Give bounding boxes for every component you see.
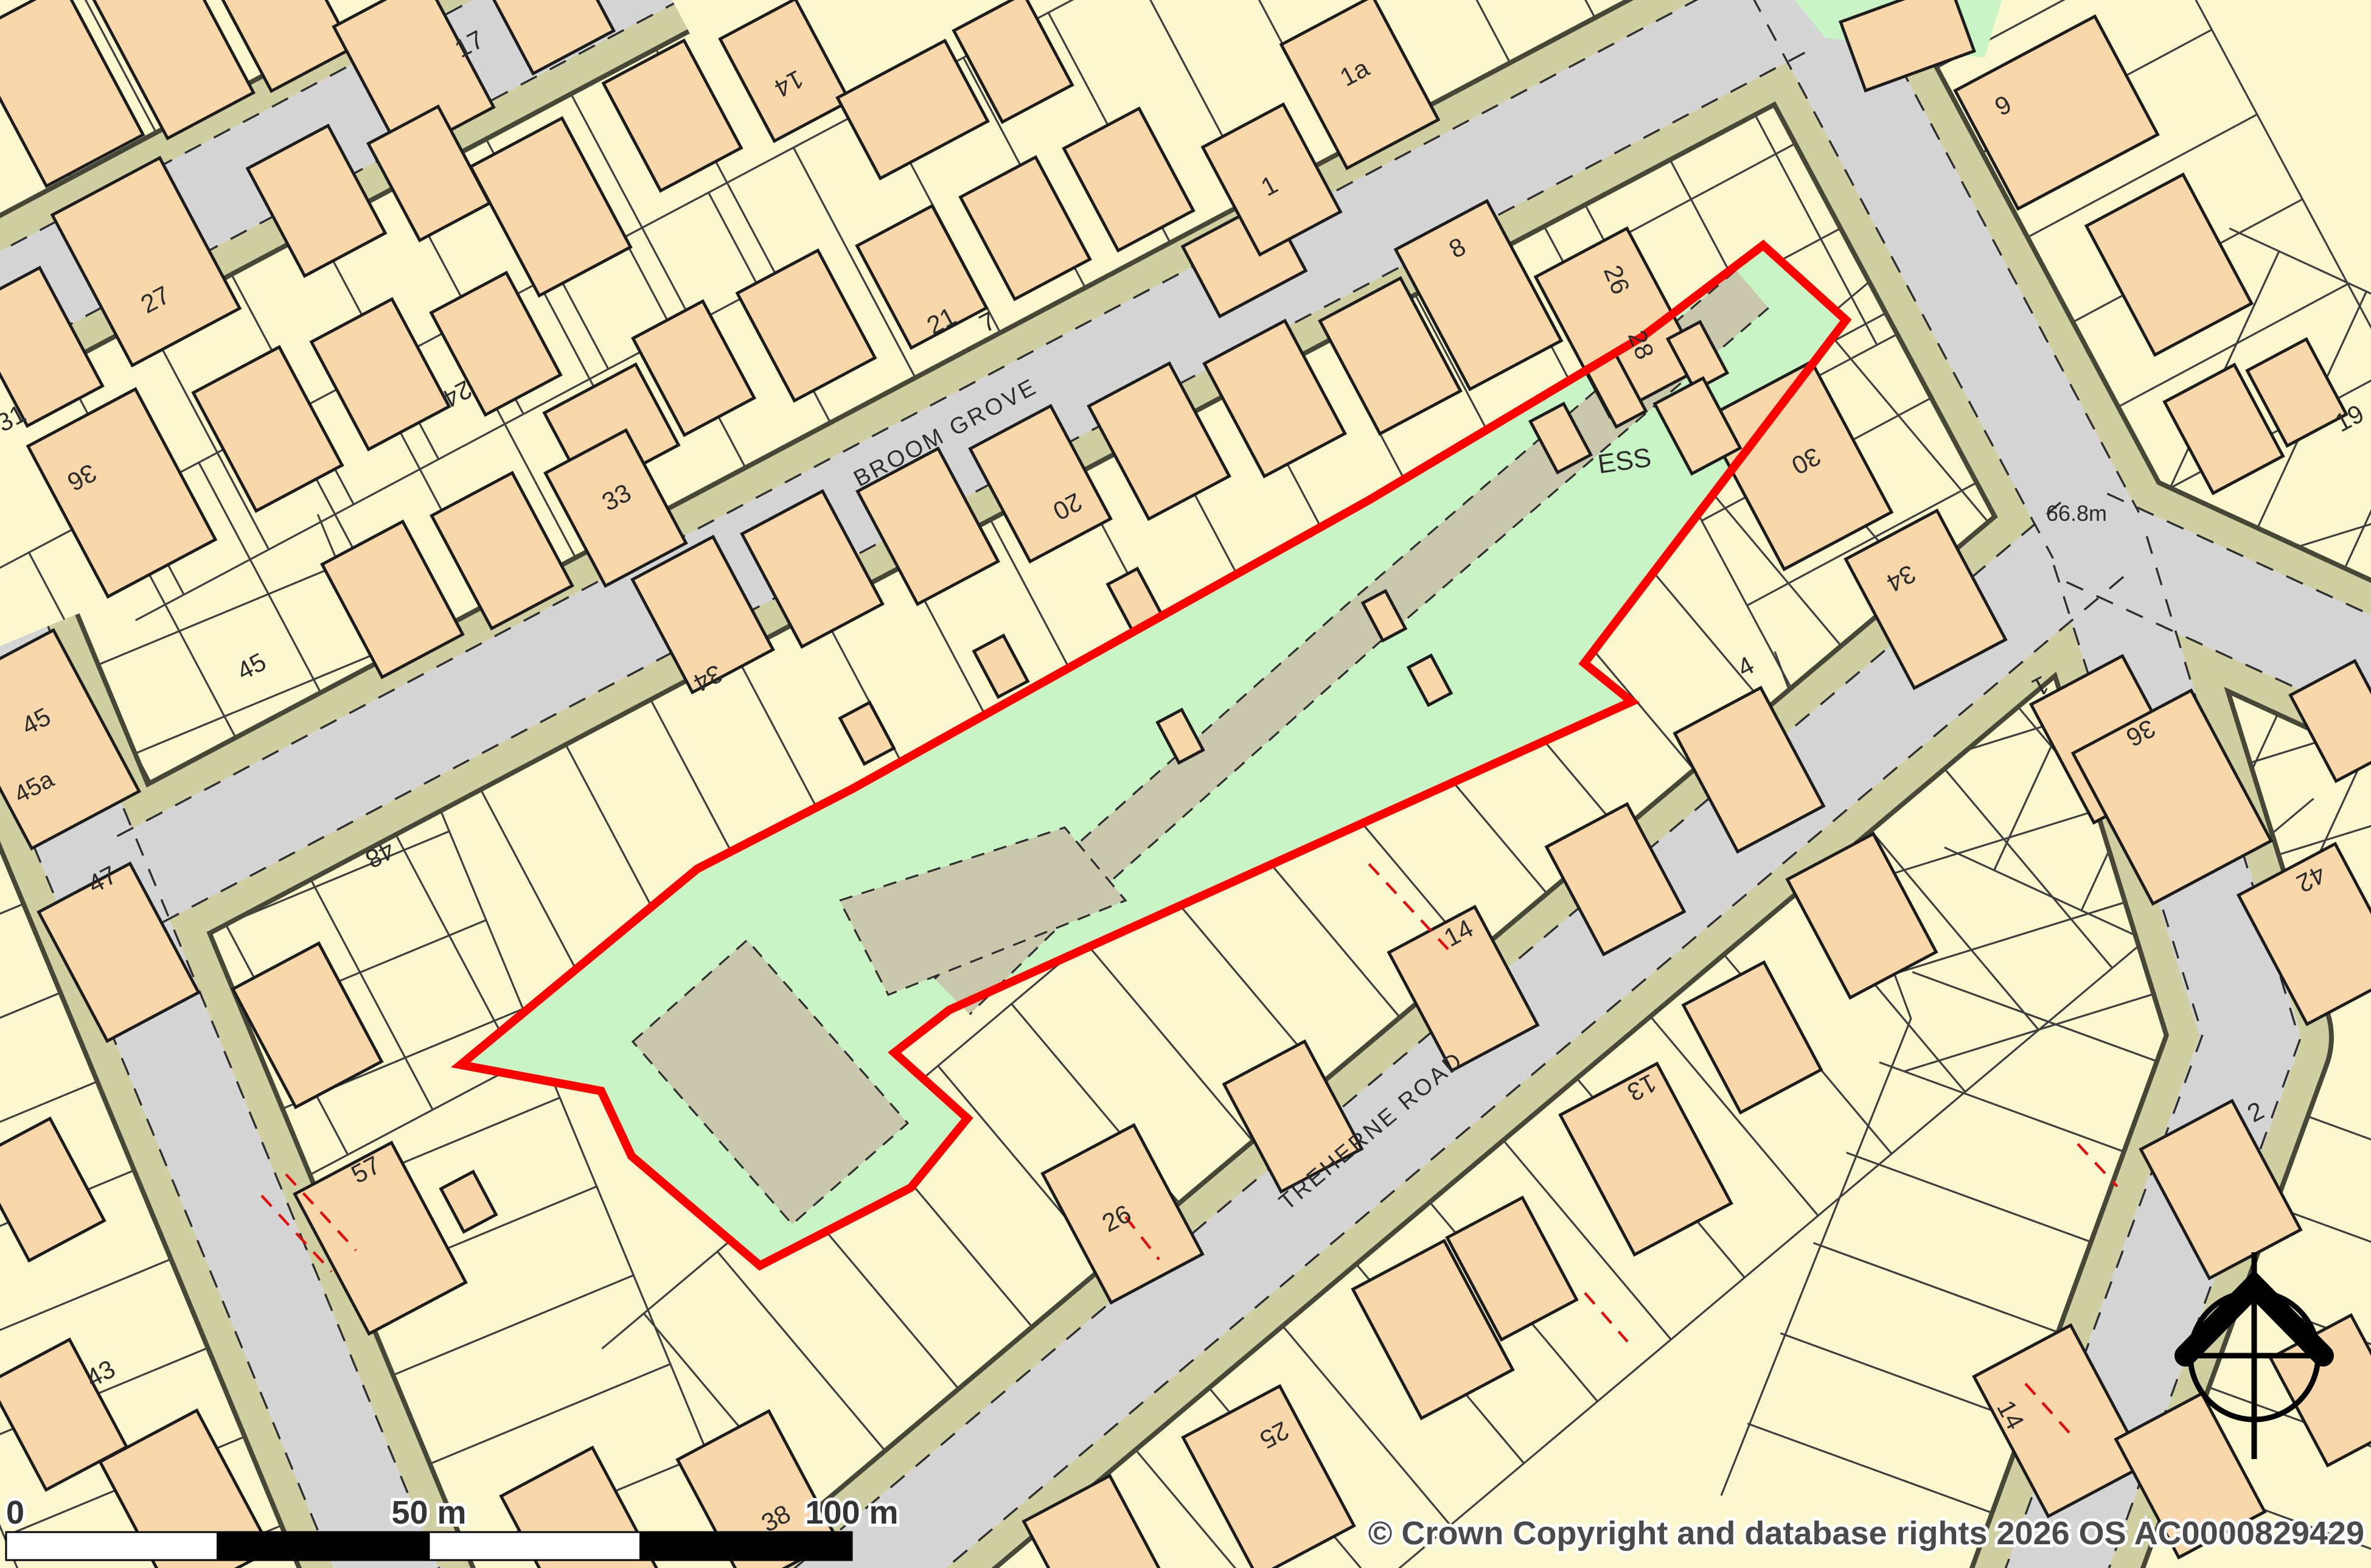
spot-height-label: 66.8m	[2046, 501, 2107, 526]
scale-bar-segment	[429, 1532, 641, 1560]
site-plan-map: BROOM GROVETREHERNE ROAD66.8mESS17273124…	[0, 0, 2371, 1568]
scale-label-0: 0	[6, 1494, 24, 1531]
scale-label-100m: 100 m	[805, 1494, 898, 1531]
map-canvas[interactable]: BROOM GROVETREHERNE ROAD66.8mESS17273124…	[0, 0, 2371, 1568]
copyright-attribution: © Crown Copyright and database rights 20…	[1368, 1515, 2364, 1552]
scale-label-50m: 50 m	[391, 1494, 466, 1531]
scale-bar-segment	[218, 1532, 430, 1560]
scale-bar-segment	[6, 1532, 218, 1560]
scale-bar-segment	[641, 1532, 852, 1560]
